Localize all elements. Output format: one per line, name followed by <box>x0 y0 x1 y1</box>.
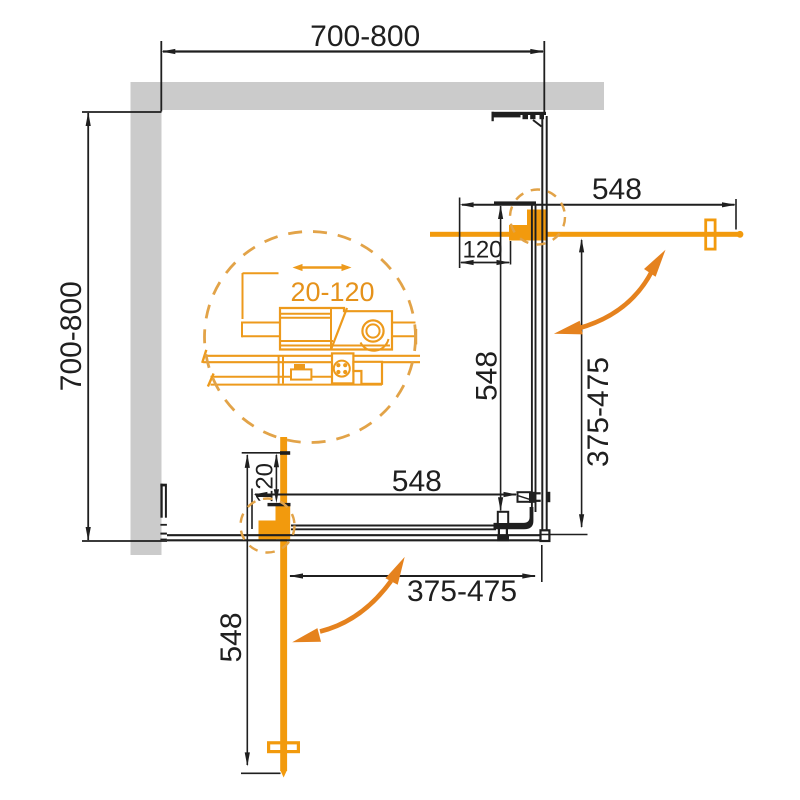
svg-text:375-475: 375-475 <box>407 575 517 608</box>
svg-text:548: 548 <box>592 173 642 206</box>
svg-text:700-800: 700-800 <box>55 281 88 391</box>
svg-text:20-120: 20-120 <box>290 277 374 307</box>
svg-text:120: 120 <box>462 237 502 264</box>
svg-text:375-475: 375-475 <box>582 357 615 467</box>
svg-text:548: 548 <box>471 351 504 401</box>
svg-text:120: 120 <box>252 463 279 503</box>
svg-text:548: 548 <box>215 612 248 662</box>
svg-text:548: 548 <box>392 465 442 498</box>
svg-text:700-800: 700-800 <box>310 20 420 53</box>
